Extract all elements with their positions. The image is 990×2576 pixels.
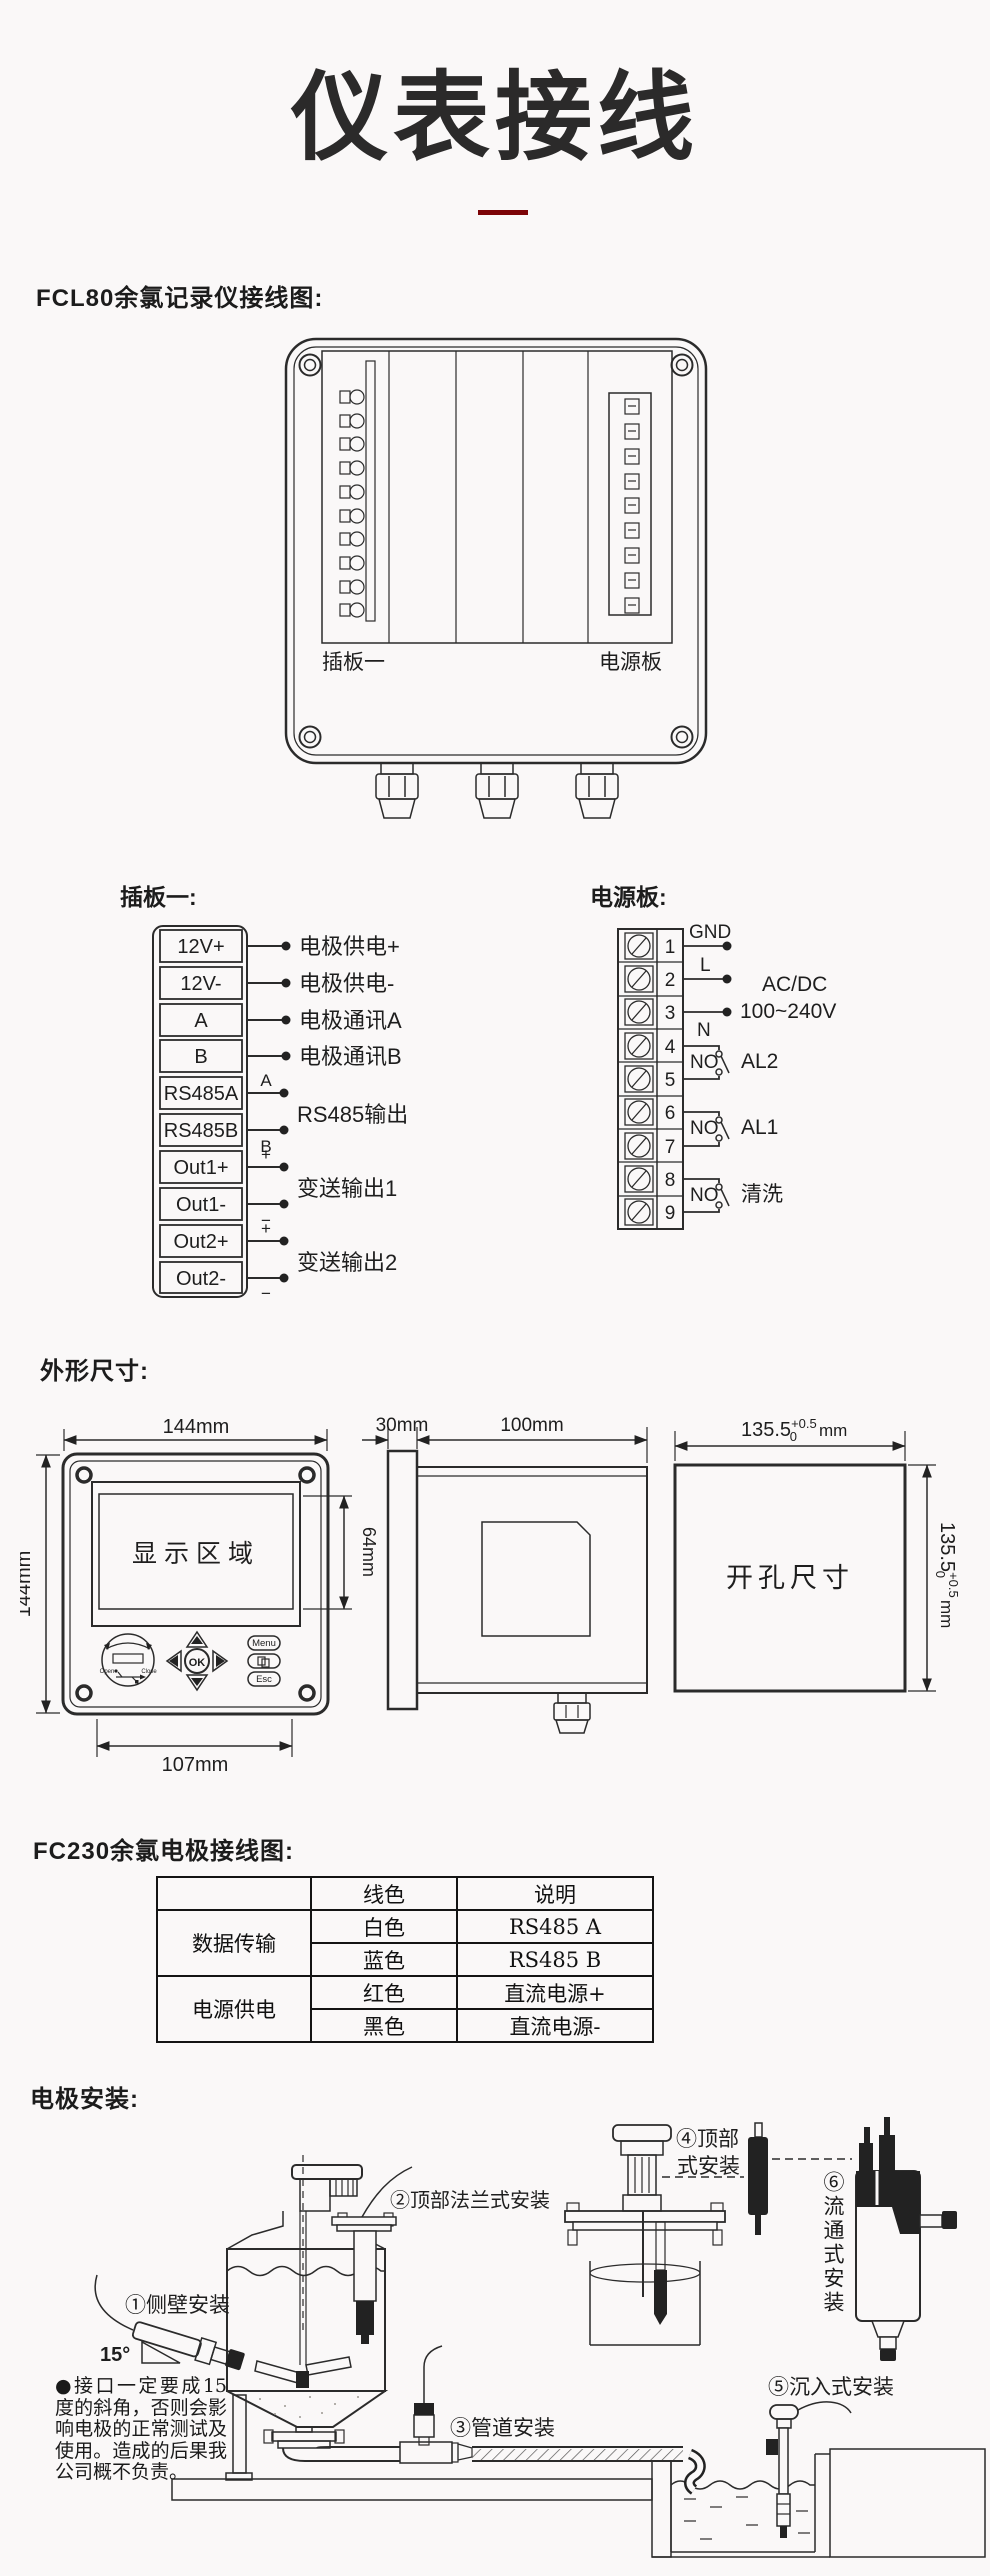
svg-text:A: A	[194, 1010, 208, 1032]
ground-and-sump	[172, 2449, 985, 2557]
svg-text:+: +	[261, 1145, 271, 1164]
section-heading-dims: 外形尺寸:	[40, 1351, 149, 1386]
page-title: 仪表接线	[0, 38, 990, 179]
usb-port-icon: Open Close	[100, 1634, 158, 1686]
annotation-labels: 电极供电+ 电极供电- 电极通讯A 电极通讯B RS485输出 变送输出1 变送…	[297, 934, 408, 1275]
wire-color-cell: 黑色	[311, 2009, 457, 2042]
supply-label-1: AC/DC	[762, 973, 827, 996]
svg-text:6: 6	[665, 1103, 676, 1124]
wire-color-cell: 白色	[311, 1910, 457, 1943]
cable-glands	[376, 763, 618, 818]
line-label: L	[700, 955, 711, 976]
col-header-wire-color: 线色	[311, 1877, 457, 1910]
install-label-4b: 式安装	[677, 2154, 740, 2178]
svg-text:电极供电-: 电极供电-	[299, 971, 394, 996]
display-area-label: 显示区域	[132, 1539, 260, 1568]
svg-text:3: 3	[665, 1003, 676, 1024]
electrode-pen	[748, 2123, 768, 2235]
neutral-label: N	[697, 1020, 711, 1041]
table-header-row: 线色 说明	[157, 1877, 653, 1910]
svg-text:电极通讯B: 电极通讯B	[299, 1044, 402, 1069]
cutout-dim-extensions	[675, 1431, 936, 1691]
svg-text:12V+: 12V+	[177, 936, 224, 958]
relay-al2: NO AL2	[683, 1046, 778, 1079]
electrode-cable	[424, 2346, 442, 2403]
svg-text:7: 7	[665, 1137, 676, 1158]
fc230-wiring-table: 线色 说明 数据传输 白色 RS485 A 蓝色 RS485 B 电源供电 红色…	[156, 1876, 654, 2043]
svg-text:Out1+: Out1+	[173, 1157, 228, 1179]
svg-text:8: 8	[665, 1170, 676, 1191]
wiring-diagrams: 12V+ 12V- A B RS485A RS485B Out1+ Out1- …	[95, 900, 900, 1311]
install-label-1: ①侧壁安装	[125, 2293, 230, 2317]
supply-label-2: 100~240V	[740, 1000, 836, 1023]
svg-text:+: +	[261, 1219, 271, 1238]
svg-text:Menu: Menu	[252, 1638, 276, 1649]
svg-text:−: −	[261, 1285, 271, 1303]
svg-text:9: 9	[665, 1203, 676, 1224]
svg-text:电极通讯A: 电极通讯A	[299, 1008, 402, 1033]
svg-text:Out2+: Out2+	[173, 1231, 228, 1253]
svg-text:AL1: AL1	[741, 1116, 778, 1139]
svg-text:A: A	[260, 1071, 272, 1090]
svg-text:变送输出1: 变送输出1	[297, 1176, 397, 1201]
install-label-3: ③管道安装	[450, 2416, 555, 2440]
arrow-keypad: OK	[167, 1632, 227, 1690]
terminal-labels: 12V+ 12V- A B RS485A RS485B Out1+ Out1- …	[164, 936, 239, 1289]
svg-text:1: 1	[665, 937, 676, 958]
svg-text:NO: NO	[690, 1185, 719, 1206]
tank-outlet	[264, 2427, 400, 2461]
svg-text:RS485A: RS485A	[164, 1083, 239, 1105]
section-heading-fc230: FC230余氯电极接线图:	[33, 1831, 294, 1866]
flow-cell	[856, 2117, 957, 2361]
page-switch-icon	[258, 1657, 269, 1667]
dim-front-bottom: 107mm	[162, 1754, 229, 1776]
install-label-6: ⑥流通式安装	[818, 2171, 848, 2341]
electrode-pipe-mount: ③管道安装	[400, 2346, 700, 2490]
svg-text:电极供电+: 电极供电+	[299, 934, 400, 959]
svg-text:4: 4	[665, 1037, 676, 1058]
relay-wash: NO 清洗	[683, 1179, 783, 1212]
dim-cutout-height: 135.5+0.50mm	[933, 1522, 961, 1628]
side-view: 30mm 100mm	[362, 1415, 647, 1733]
screw-terminal-icons	[625, 933, 653, 1225]
installation-note: ●接口一定要成15度的斜角，否则会影响电极的正常测试及使用。造成的后果我公司概不…	[55, 2376, 227, 2484]
group-data-transfer: 数据传输	[157, 1910, 311, 1976]
dim-front-height: 144mm	[20, 1551, 35, 1618]
stirrer-blades	[255, 2357, 351, 2388]
install-label-2: ②顶部法兰式安装	[390, 2188, 550, 2212]
cutout-view: 开孔尺寸 135.5+0.50mm 135.5+0.50mm	[675, 1416, 961, 1691]
svg-text:Close: Close	[141, 1669, 157, 1675]
wire-color-cell: 红色	[311, 1976, 457, 2009]
description-cell: RS485 A	[457, 1910, 653, 1943]
description-cell: 直流电源-	[457, 2009, 653, 2042]
svg-text:Open: Open	[100, 1669, 115, 1675]
cutout-label: 开孔尺寸	[726, 1563, 854, 1594]
terminal-numbers: 1 2 3 4 5 6 7 8 9	[665, 937, 676, 1224]
board-label-right: 电源板	[599, 650, 662, 674]
plugboard-diagram: 12V+ 12V- A B RS485A RS485B Out1+ Out1- …	[153, 926, 408, 1303]
svg-text:OK: OK	[189, 1657, 206, 1669]
electrode-top-mount: ④顶部 式安装	[565, 2123, 852, 2345]
gnd-label: GND	[689, 922, 731, 943]
svg-text:清洗: 清洗	[741, 1183, 783, 1206]
page-switch-button	[248, 1654, 280, 1668]
svg-text:NO: NO	[690, 1118, 719, 1139]
table-row: 电源供电 红色 直流电源+	[157, 1976, 653, 2009]
table-corner-cell	[157, 1877, 311, 1910]
description-cell: RS485 B	[457, 1943, 653, 1976]
electrode-top-flange: ②顶部法兰式安装	[332, 2167, 550, 2344]
svg-text:B: B	[194, 1046, 207, 1068]
svg-text:RS485输出: RS485输出	[297, 1102, 408, 1127]
svg-text:Esc: Esc	[256, 1674, 272, 1685]
svg-text:AL2: AL2	[741, 1050, 778, 1073]
function-buttons: Menu Esc	[248, 1636, 280, 1686]
section-heading-fcl80: FCL80余氯记录仪接线图:	[36, 278, 323, 313]
svg-text:12V-: 12V-	[180, 973, 221, 995]
powerboard-diagram: 1 2 3 4 5 6 7 8 9 GND L N AC/DC 100~240V	[618, 922, 836, 1229]
manual-page: 仪表接线 FCL80余氯记录仪接线图:	[0, 0, 990, 2576]
side-gland	[554, 1693, 590, 1733]
install-label-4a: ④顶部	[676, 2127, 739, 2151]
electrode-cable	[798, 2402, 851, 2413]
svg-text:5: 5	[665, 1070, 676, 1091]
svg-text:RS485B: RS485B	[164, 1120, 239, 1142]
dim-extension-lines	[36, 1429, 352, 1757]
svg-text:2: 2	[665, 970, 676, 991]
install-label-5: ⑤沉入式安装	[768, 2375, 894, 2399]
section-heading-install: 电极安装:	[30, 2079, 139, 2114]
dim-side-bezel: 30mm	[376, 1415, 429, 1436]
description-cell: 直流电源+	[457, 1976, 653, 2009]
svg-text:135.5+0.50mm: 135.5+0.50mm	[933, 1522, 961, 1628]
angle-label: 15°	[100, 2344, 130, 2366]
wire-color-cell: 蓝色	[311, 1943, 457, 1976]
title-divider	[478, 210, 528, 215]
group-power-supply: 电源供电	[157, 1976, 311, 2042]
electrode-side-wall: 15° ①侧壁安装	[95, 2275, 246, 2373]
dim-cutout-width: 135.5+0.50mm	[741, 1416, 847, 1444]
dimension-drawings: 显示区域 Open Close	[20, 1407, 970, 1779]
dim-side-depth: 100mm	[500, 1415, 563, 1436]
water-marks	[684, 2497, 810, 2539]
polarity-marks: A B + − + −	[260, 1071, 272, 1303]
dim-display-height: 64mm	[359, 1527, 379, 1577]
table-row: 数据传输 白色 RS485 A	[157, 1910, 653, 1943]
wire-dots	[280, 942, 291, 1283]
small-motor	[613, 2125, 671, 2211]
svg-text:变送输出2: 变送输出2	[297, 1250, 397, 1275]
svg-text:Out1-: Out1-	[176, 1194, 226, 1216]
svg-text:Out2-: Out2-	[176, 1268, 226, 1289]
front-view: 显示区域 Open Close	[20, 1416, 379, 1776]
enclosure-diagram: 插板一 电源板	[280, 330, 712, 825]
col-header-description: 说明	[457, 1877, 653, 1910]
relay-al1: NO AL1	[683, 1112, 778, 1146]
svg-text:NO: NO	[690, 1052, 719, 1073]
board-label-left: 插板一	[322, 650, 385, 674]
dim-front-width: 144mm	[163, 1416, 230, 1438]
